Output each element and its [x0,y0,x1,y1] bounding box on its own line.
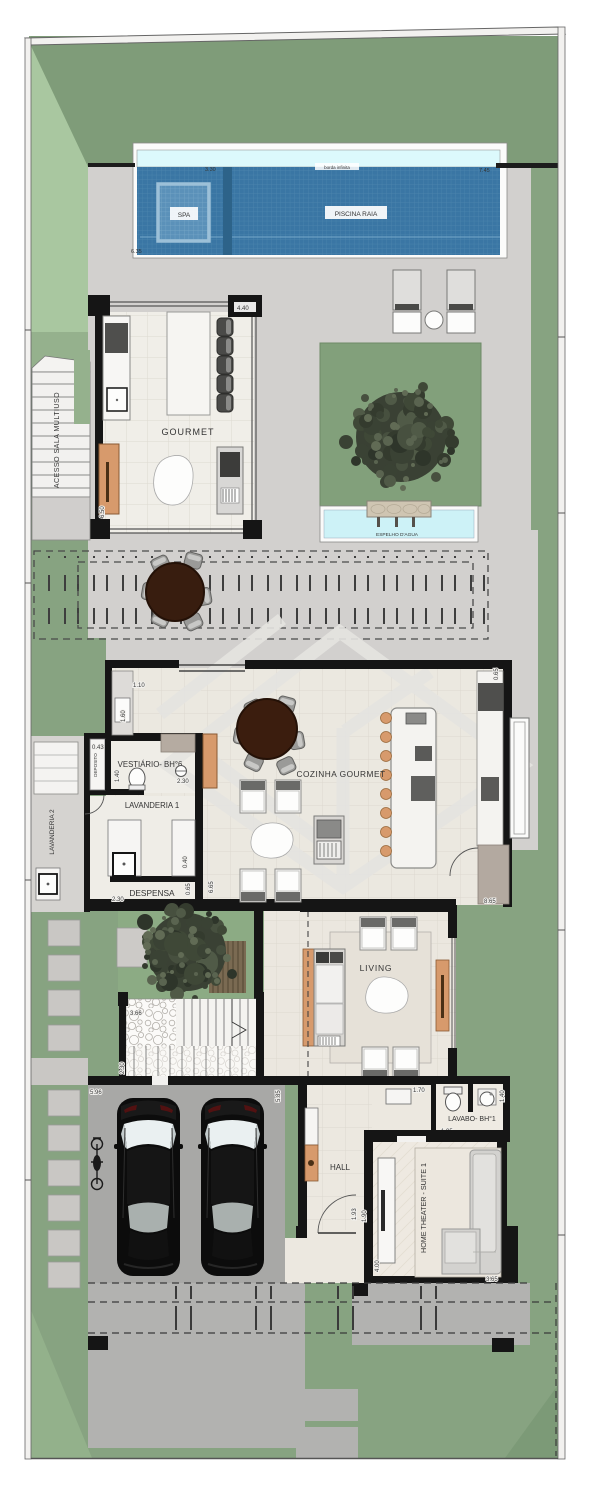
svg-text:4.00: 4.00 [375,1260,381,1272]
svg-text:1.10: 1.10 [133,683,145,689]
svg-text:borda infinita: borda infinita [324,165,350,170]
svg-text:0.65: 0.65 [494,668,500,680]
svg-text:DESPENSA: DESPENSA [129,888,175,898]
svg-text:4.40: 4.40 [237,306,249,312]
svg-text:ACESSO SALA MULTIUSO: ACESSO SALA MULTIUSO [54,392,61,488]
svg-text:8.65: 8.65 [484,899,496,905]
svg-text:HALL: HALL [330,1163,351,1172]
svg-text:PISCINA RAIA: PISCINA RAIA [335,211,378,218]
svg-text:VESTIÁRIO- BH°6: VESTIÁRIO- BH°6 [118,760,183,769]
svg-text:6.50: 6.50 [100,506,106,518]
svg-text:LAVANDERIA 2: LAVANDERIA 2 [49,809,56,855]
svg-text:GOURMET: GOURMET [162,427,215,437]
svg-text:LIVING: LIVING [360,963,393,973]
svg-text:1.40: 1.40 [500,1090,506,1102]
svg-text:1.93: 1.93 [352,1208,358,1220]
svg-text:6.35: 6.35 [131,249,142,255]
svg-text:1.40: 1.40 [115,770,121,782]
svg-text:2.30: 2.30 [112,897,124,903]
svg-text:LAVABO- BH°1: LAVABO- BH°1 [448,1115,496,1123]
svg-text:DEPOSITO: DEPOSITO [93,753,98,777]
svg-text:7.45: 7.45 [479,168,490,174]
svg-text:0.65: 0.65 [186,883,192,895]
svg-text:3.66: 3.66 [130,1011,142,1017]
svg-text:SPA: SPA [178,212,191,219]
svg-text:0.43: 0.43 [92,745,104,751]
svg-text:1.60: 1.60 [121,710,127,722]
svg-text:1.90: 1.90 [362,1210,368,1222]
svg-text:3.30: 3.30 [205,167,216,173]
svg-text:5.85: 5.85 [276,1090,282,1102]
svg-text:ESPELHO D'AGUA: ESPELHO D'AGUA [376,532,419,538]
svg-text:COZINHA GOURMET: COZINHA GOURMET [296,769,385,779]
svg-text:2.30: 2.30 [177,779,189,785]
svg-text:2.30: 2.30 [120,1062,126,1074]
svg-text:1.70: 1.70 [413,1088,425,1094]
svg-text:LAVANDERIA 1: LAVANDERIA 1 [125,801,179,810]
svg-text:HOME THEATER - SUITE 1: HOME THEATER - SUITE 1 [419,1163,428,1253]
svg-text:6.65: 6.65 [209,881,215,893]
svg-text:0.40: 0.40 [183,856,189,868]
svg-text:5.96: 5.96 [90,1090,102,1096]
svg-text:3.65: 3.65 [486,1277,498,1283]
